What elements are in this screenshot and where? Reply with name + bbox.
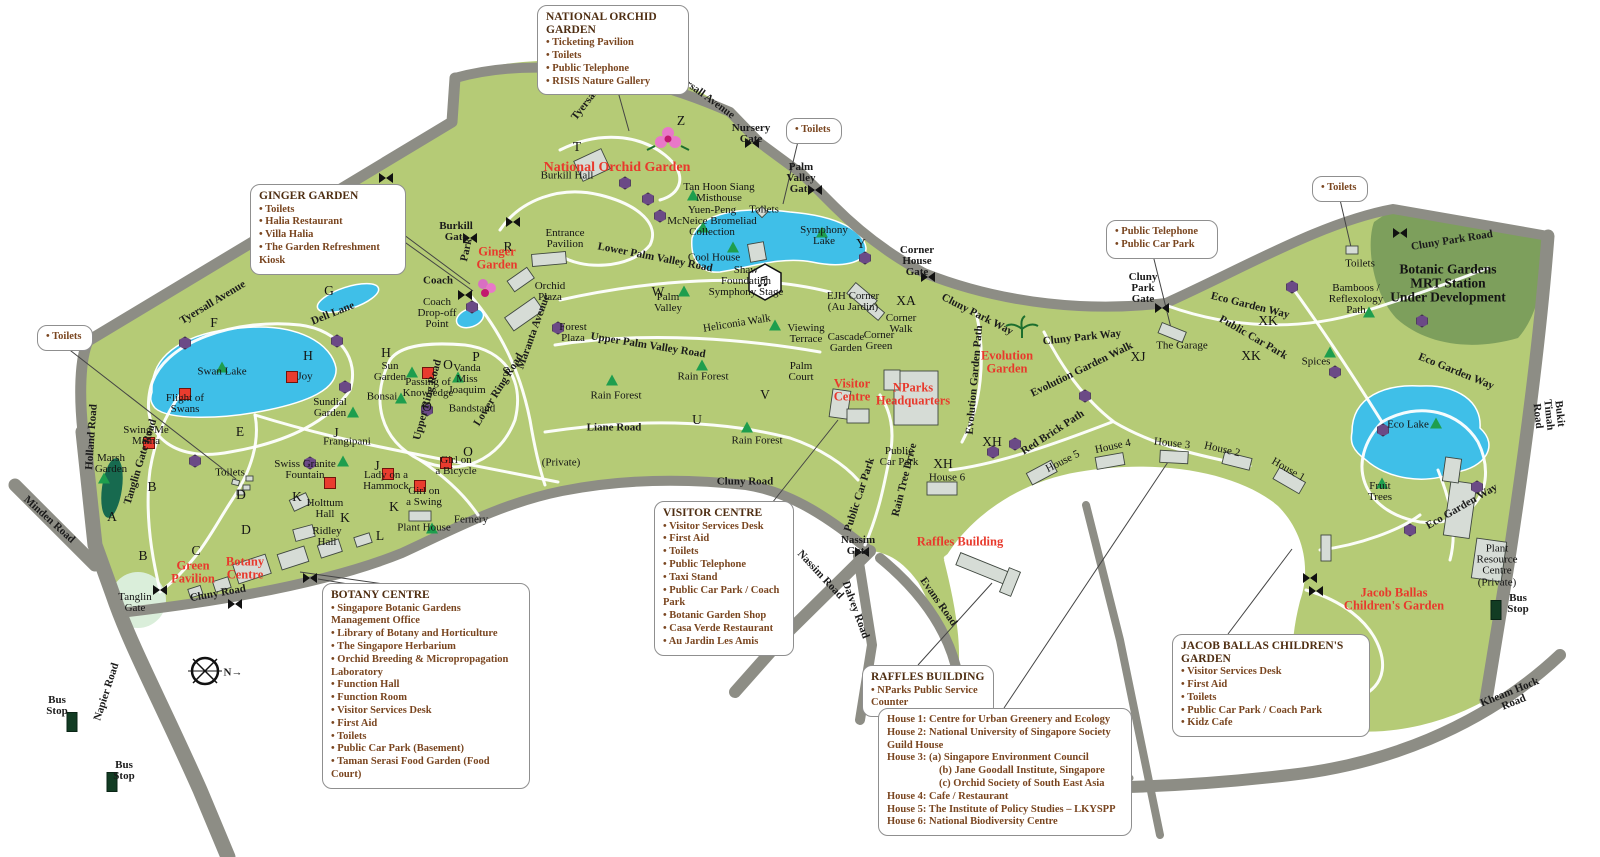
map-graphic [0,0,1600,857]
botanic-gardens-map: Tyersall AvenueTyersall AvenueTyersall A… [0,0,1600,857]
compass-icon [188,658,222,684]
